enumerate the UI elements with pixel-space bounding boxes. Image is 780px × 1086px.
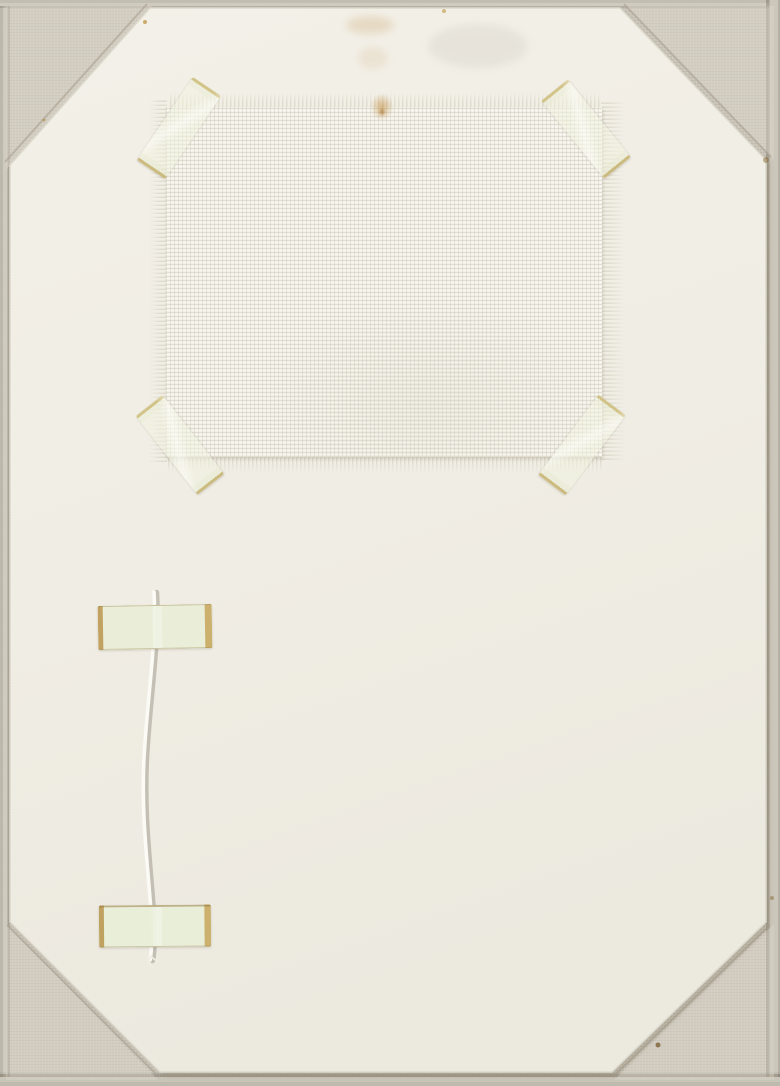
- artwork-photo: [0, 0, 780, 1086]
- tape-string-upper: [98, 604, 213, 650]
- tape-string-lower: [99, 905, 211, 948]
